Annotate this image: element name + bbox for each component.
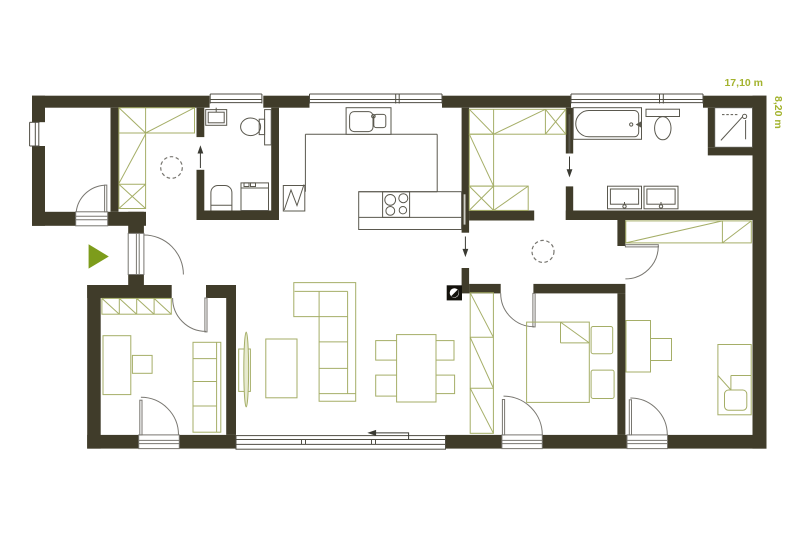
svg-text:17,10 m: 17,10 m [724, 77, 763, 89]
svg-text:8,20 m: 8,20 m [772, 96, 784, 129]
